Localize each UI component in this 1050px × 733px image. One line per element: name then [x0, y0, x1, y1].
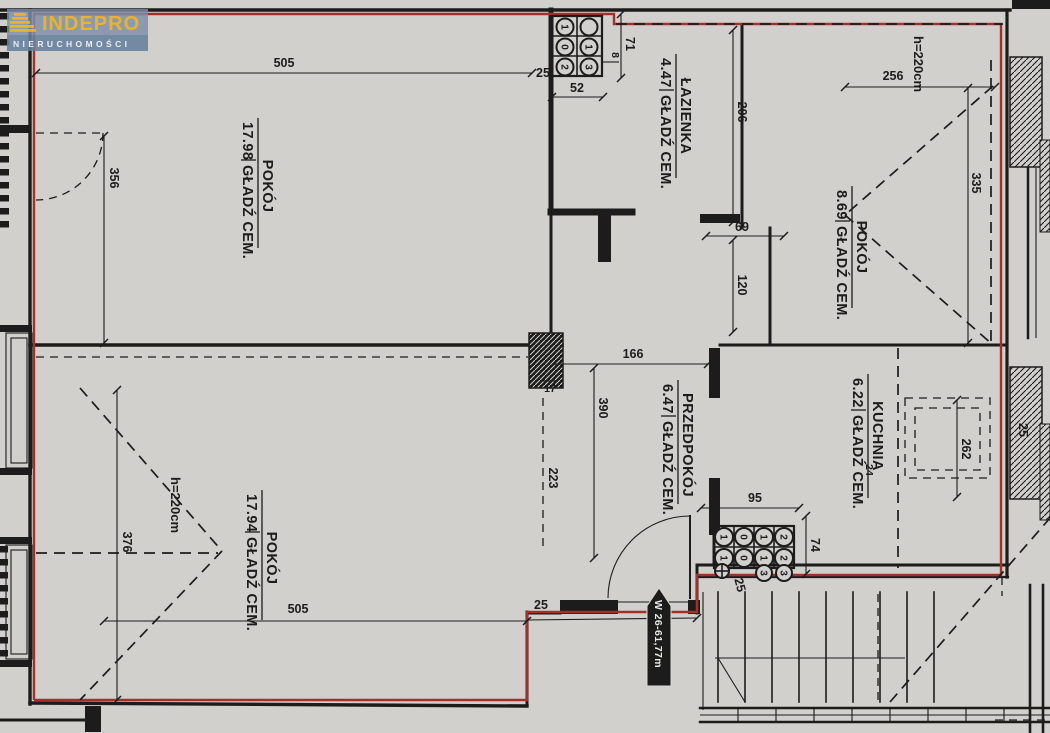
riser-digit: 2: [778, 534, 789, 540]
entrance-arrow: W 26-61,77m: [647, 588, 671, 686]
logo-brand-text: INDEPRO: [42, 13, 140, 35]
room-area: 4.47: [657, 58, 673, 88]
room-finish: GŁADŹ CEM.: [243, 537, 260, 631]
logo-tagline-text: NIERUCHOMOŚCI: [13, 38, 130, 49]
riser-digit: 1: [758, 555, 769, 561]
dim-335: 335: [969, 173, 983, 194]
floor-plan-page: 505 25 52 71 8 206 69 120 256 335 166 39…: [0, 0, 1050, 733]
room-area: 17.94: [243, 494, 259, 532]
dim-223: 223: [546, 468, 560, 489]
riser-grid-top: 1 0 1 2 3: [552, 16, 602, 76]
right-window-1: [1010, 57, 1042, 167]
room-name: POKÓJ: [853, 221, 871, 274]
dim-71: 71: [623, 37, 637, 51]
dim-17: 17: [544, 383, 556, 395]
height-label-left: h=220cm: [168, 477, 183, 533]
riser-digit: 1: [583, 44, 594, 50]
riser-digit: 1: [758, 534, 769, 540]
height-label-right: h=220cm: [911, 36, 926, 92]
dim-25-kitchen: 25: [1016, 423, 1030, 437]
dim-505-top: 505: [274, 56, 295, 70]
dim-166: 166: [623, 347, 644, 361]
riser-digit: 2: [559, 64, 570, 70]
dim-356: 356: [107, 168, 121, 189]
room-area: 8.69: [833, 190, 849, 220]
room-name: PRZEDPOKÓJ: [679, 393, 697, 497]
room-finish: GŁADŹ CEM.: [849, 415, 866, 509]
dim-8: 8: [609, 52, 621, 58]
dim-25-top: 25: [536, 66, 550, 80]
riser-digit: 0: [738, 534, 749, 540]
riser-digit: 0: [559, 44, 570, 50]
dim-69: 69: [735, 220, 749, 234]
dim-256: 256: [883, 69, 904, 83]
dim-52: 52: [570, 81, 584, 95]
room-area: 17.98: [239, 122, 255, 160]
indepro-logo: INDEPRO NIERUCHOMOŚCI: [7, 9, 148, 51]
entrance-arrow-label: W 26-61,77m: [652, 600, 664, 668]
room-name: ŁAZIENKA: [677, 78, 693, 155]
dim-376: 376: [120, 532, 134, 553]
dim-120: 120: [735, 275, 749, 296]
riser-digit: 3: [758, 570, 769, 576]
riser-digit: 3: [583, 64, 594, 70]
room-area: 6.47: [659, 384, 675, 414]
riser-digit: 1: [718, 555, 729, 561]
dim-262: 262: [959, 439, 973, 460]
riser-digit: 2: [778, 555, 789, 561]
riser-digit: 1: [559, 24, 570, 30]
dim-206: 206: [735, 102, 749, 123]
riser-digit: 0: [738, 555, 749, 561]
floor-plan: 505 25 52 71 8 206 69 120 256 335 166 39…: [0, 0, 1050, 733]
dim-390: 390: [596, 398, 610, 419]
room-finish: GŁADŹ CEM.: [659, 421, 676, 515]
riser-digit: 3: [778, 570, 789, 576]
room-area: 6.22: [849, 378, 865, 408]
dim-95: 95: [748, 491, 762, 505]
riser-digit: 1: [718, 534, 729, 540]
room-name: KUCHNIA: [869, 401, 885, 471]
room-name: POKÓJ: [259, 160, 277, 213]
dim-74: 74: [808, 538, 822, 552]
room-name: POKÓJ: [263, 532, 281, 585]
chimney-block: [529, 333, 563, 388]
dim-505-bottom: 505: [288, 602, 309, 616]
room-finish: GŁADŹ CEM.: [657, 95, 674, 189]
room-label-przedpokoj: PRZEDPOKÓJ 6.47 GŁADŹ CEM.: [659, 380, 697, 515]
room-finish: GŁADŹ CEM.: [833, 226, 850, 320]
dim-25-bottom: 25: [534, 598, 548, 612]
room-finish: GŁADŹ CEM.: [239, 165, 256, 259]
